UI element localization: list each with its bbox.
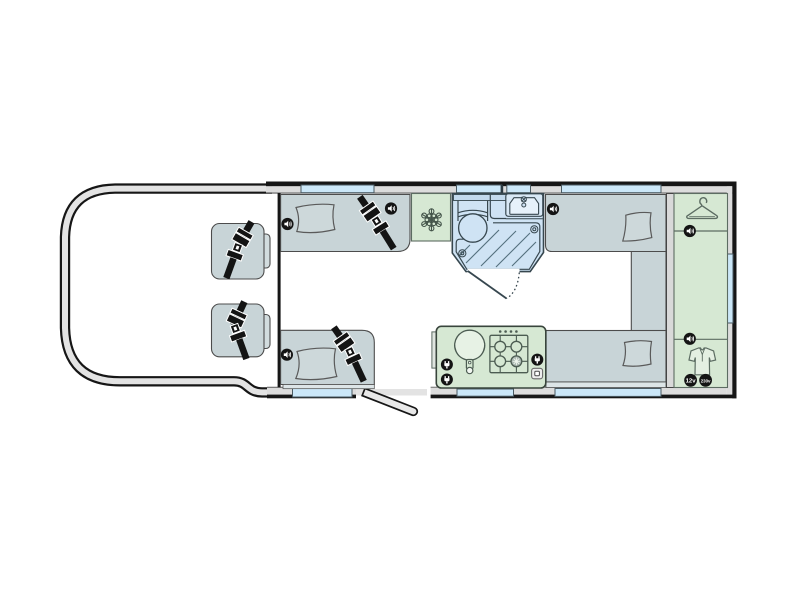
svg-text:12v: 12v [686,378,697,385]
svg-text:230v: 230v [701,378,711,383]
